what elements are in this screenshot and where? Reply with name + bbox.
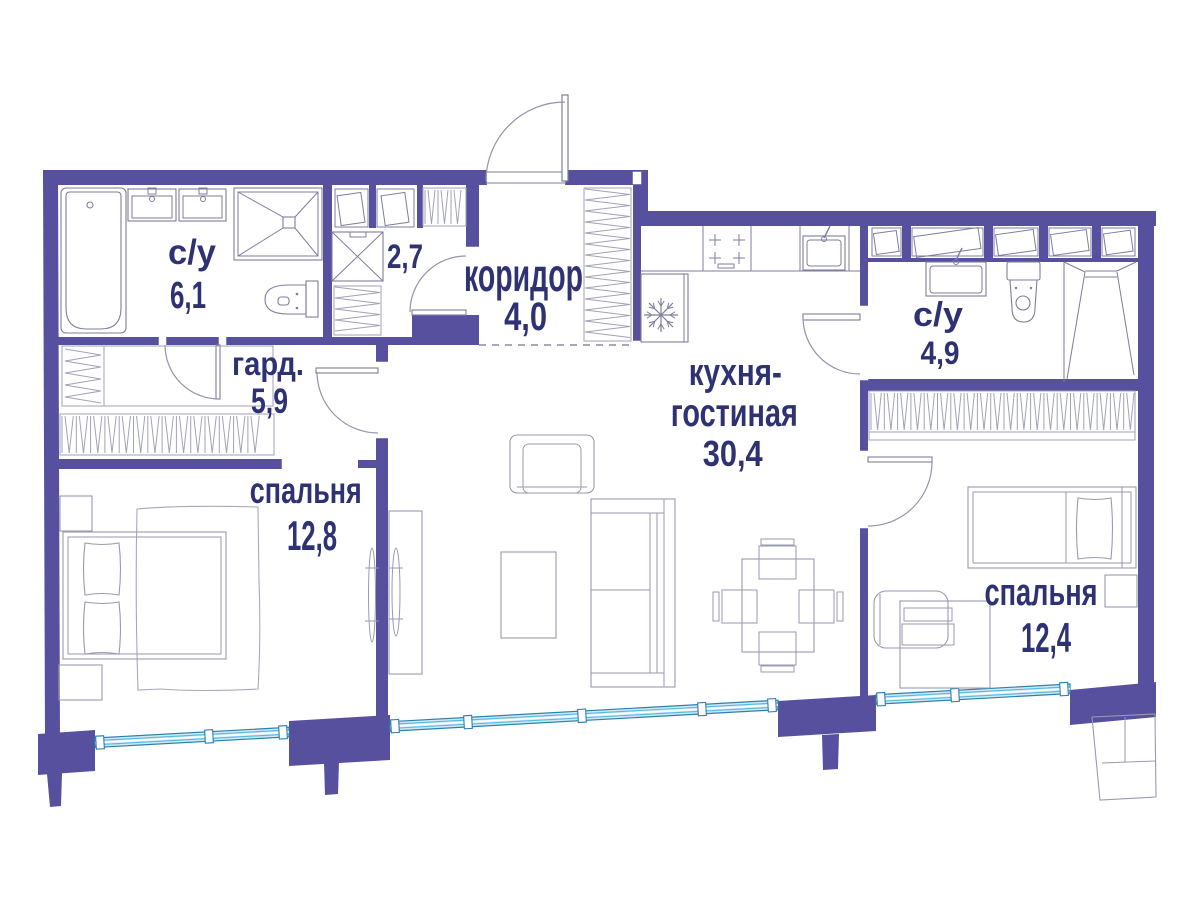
svg-text:5,9: 5,9 <box>251 382 288 421</box>
svg-text:12,8: 12,8 <box>287 512 337 559</box>
svg-text:4,0: 4,0 <box>504 295 547 339</box>
svg-text:кухня-: кухня- <box>689 352 782 394</box>
svg-text:гард.: гард. <box>232 345 304 382</box>
svg-text:с/у: с/у <box>913 296 963 334</box>
svg-text:4,9: 4,9 <box>921 335 960 371</box>
svg-text:2,7: 2,7 <box>387 238 423 276</box>
svg-text:коридор: коридор <box>464 249 583 301</box>
svg-text:гостиная: гостиная <box>671 392 798 435</box>
svg-text:спальня: спальня <box>250 470 362 511</box>
svg-text:спальня: спальня <box>985 572 1098 614</box>
svg-text:с/у: с/у <box>168 233 217 272</box>
svg-text:30,4: 30,4 <box>703 433 763 474</box>
svg-text:6,1: 6,1 <box>170 275 206 317</box>
svg-text:12,4: 12,4 <box>1021 614 1071 661</box>
